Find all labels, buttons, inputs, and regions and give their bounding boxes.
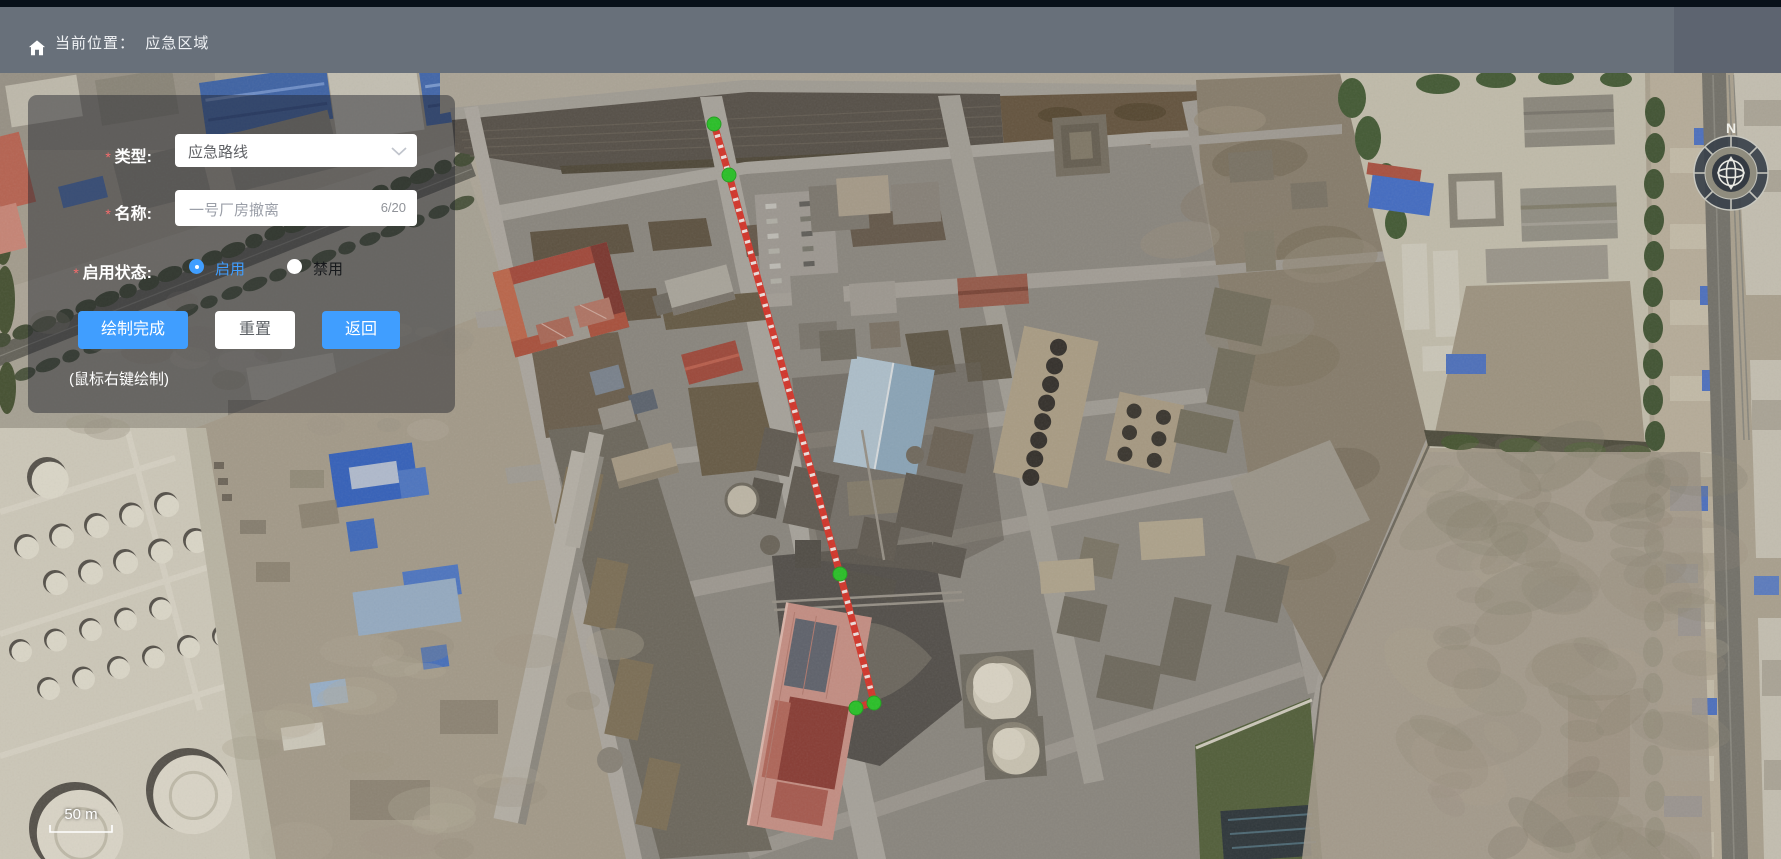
svg-text:N: N	[1726, 120, 1736, 136]
